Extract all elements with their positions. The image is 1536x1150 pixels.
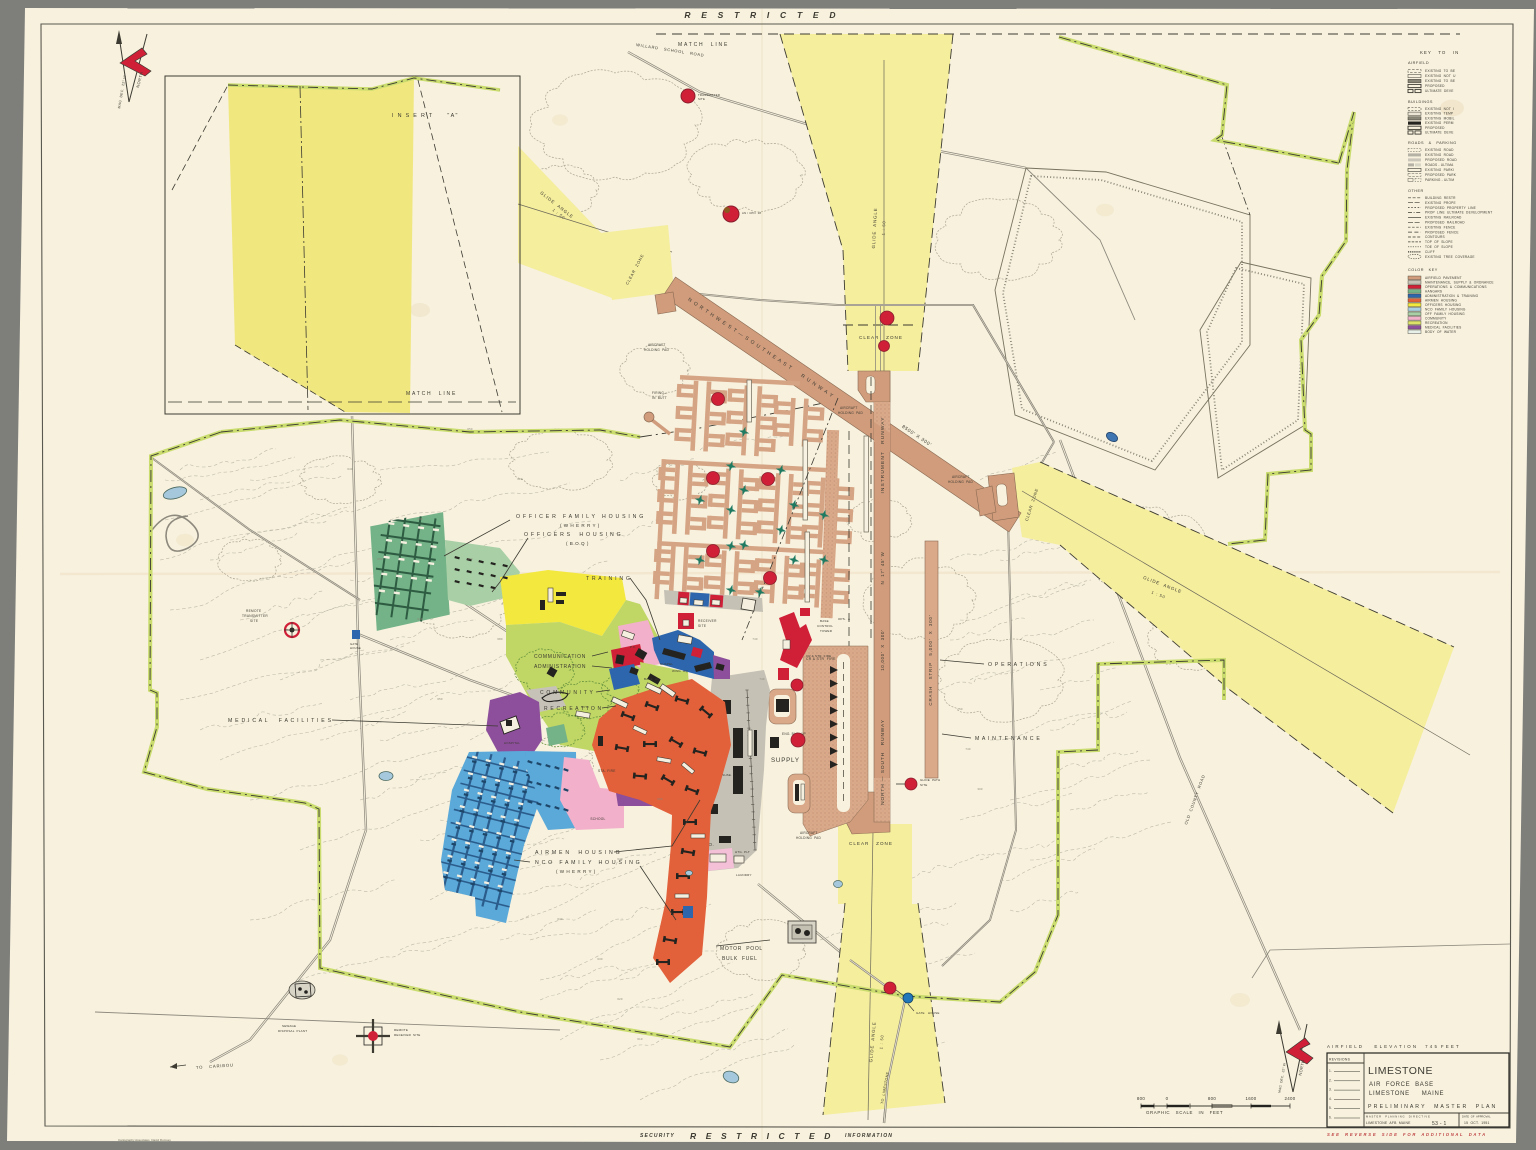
svg-text:740: 740 [752,637,758,641]
svg-text:630: 630 [597,957,603,961]
svg-text:EXISTING TEMP: EXISTING TEMP [1425,112,1453,116]
svg-text:N 17° 45' W: N 17° 45' W [880,551,885,584]
svg-text:MEDICAL FACILITIES: MEDICAL FACILITIES [1425,326,1461,330]
svg-text:EXISTING MOBIL: EXISTING MOBIL [1425,116,1455,120]
svg-text:2400: 2400 [1285,1096,1296,1101]
svg-text:BUILDINGS: BUILDINGS [1408,100,1433,104]
svg-text:GATE HOUSE: GATE HOUSE [916,1011,940,1015]
svg-text:COMMUNICATION: COMMUNICATION [534,654,586,660]
svg-text:GLIDE PATH: GLIDE PATH [920,778,940,782]
svg-text:O P E R A T I O N S: O P E R A T I O N S [988,662,1047,668]
svg-text:INFORMATION: INFORMATION [845,1133,893,1139]
svg-text:BASE HQ: BASE HQ [644,677,660,681]
svg-text:DISPOSAL PLANT: DISPOSAL PLANT [278,1029,307,1033]
svg-text:640: 640 [417,617,423,621]
svg-text:EXISTING NOT I: EXISTING NOT I [1425,107,1454,111]
svg-text:RECREATION: RECREATION [1425,321,1448,325]
svg-text:ROADS - ULTIMA: ROADS - ULTIMA [1425,163,1454,167]
svg-text:P.X.: P.X. [630,645,636,649]
svg-text:P R E L I M I N A R Y M A: P R E L I M I N A R Y M A S T E R P L A … [1368,1104,1496,1110]
svg-text:SITE: SITE [920,783,927,787]
svg-text:CRASH STRIP 5,000' X 300: CRASH STRIP 5,000' X 300' [928,614,933,705]
svg-text:HOSPITAL: HOSPITAL [504,741,520,745]
svg-text:EXISTING ROAD: EXISTING ROAD [1425,148,1454,152]
svg-text:COLOR KEY: COLOR KEY [1408,268,1438,272]
svg-text:PROPOSED ROAD: PROPOSED ROAD [1425,158,1457,162]
svg-text:BUILDING RESTR: BUILDING RESTR [1425,196,1456,200]
svg-text:PROPOSED FENCE: PROPOSED FENCE [1425,230,1459,234]
svg-text:EXISTING TO BE: EXISTING TO BE [1425,79,1455,83]
svg-text:I N S E R T "A": I N S E R T "A" [392,113,459,119]
svg-text:BASE: BASE [820,619,829,623]
svg-text:0: 0 [1166,1096,1169,1101]
svg-text:610: 610 [637,1037,643,1041]
svg-text:M A I N T E N A N C E: M A I N T E N A N C E [975,736,1041,742]
svg-text:GRAPHIC SCALE IN FEET: GRAPHIC SCALE IN FEET [1146,1110,1223,1115]
svg-text:650: 650 [437,697,443,701]
svg-text:BODY OF WATER: BODY OF WATER [1425,330,1457,334]
svg-text:MATCH LINE: MATCH LINE [406,391,457,397]
svg-text:620: 620 [517,477,523,481]
svg-text:( B.O.Q ): ( B.O.Q ) [566,541,589,546]
svg-text:EXISTING TO BE: EXISTING TO BE [1425,69,1455,73]
svg-text:15 OCT. 1951: 15 OCT. 1951 [1464,1121,1490,1125]
svg-text:EXISTING PERM: EXISTING PERM [1425,121,1454,125]
svg-text:53 - 1: 53 - 1 [1432,1121,1447,1127]
svg-text:PROP LINE ULTIMATE DEVELOPM: PROP LINE ULTIMATE DEVELOPMENT [1425,211,1492,215]
svg-text:660: 660 [657,797,663,801]
svg-text:S E E R E V E R S E S I: S E E R E V E R S E S I D E F O R A D D … [1327,1132,1485,1137]
svg-text:RECEIVER: RECEIVER [698,619,717,623]
svg-text:MATCH LINE: MATCH LINE [678,42,729,48]
svg-text:STA. FIRE: STA. FIRE [598,769,616,773]
svg-text:KEY TO IN: KEY TO IN [1420,50,1459,55]
svg-text:10,000' X 300': 10,000' X 300' [880,629,885,670]
svg-text:CONTOURS: CONTOURS [1425,235,1445,239]
svg-text:6.: 6. [1329,1116,1332,1120]
svg-text:R E S T R I C T E D: R E S T R I C T E D [690,1131,834,1141]
svg-text:TOWER: TOWER [820,629,833,633]
svg-text:CR.& STR. FIRE: CR.& STR. FIRE [806,654,831,658]
svg-text:AIRMEN HOUSING: AIRMEN HOUSING [1425,299,1457,303]
svg-text:INSTRUMENT RUNWAY: INSTRUMENT RUNWAY [880,416,886,493]
svg-text:HTG. PLT: HTG. PLT [735,850,750,854]
svg-text:HANGARS: HANGARS [1425,290,1442,294]
svg-text:AIRCRAFT: AIRCRAFT [840,406,858,410]
svg-text:ROADS & PARKING: ROADS & PARKING [1408,141,1457,145]
svg-text:MAINTENANCE, SUPPLY & ORDNA: MAINTENANCE, SUPPLY & ORDNANCE [1425,281,1494,285]
svg-text:( W H E R R Y ): ( W H E R R Y ) [560,523,600,528]
svg-text:640: 640 [617,857,623,861]
svg-text:620: 620 [617,997,623,1001]
svg-text:REMOTE: REMOTE [394,1028,408,1032]
svg-text:SITE: SITE [250,619,258,623]
svg-text:ADMINISTRATION & TRAINING: ADMINISTRATION & TRAINING [1425,294,1479,298]
svg-text:DATE OF APPROVAL: DATE OF APPROVAL [1462,1115,1491,1119]
svg-text:1 : 50: 1 : 50 [881,220,887,235]
svg-text:740: 740 [759,677,765,681]
svg-text:650: 650 [467,557,473,561]
svg-text:TOP OF SLOPE: TOP OF SLOPE [1425,240,1453,244]
svg-text:HOLDING PAD: HOLDING PAD [838,411,864,415]
svg-text:MOTOR POOL: MOTOR POOL [720,946,763,952]
svg-text:1.: 1. [1329,1069,1332,1073]
svg-text:RECEIVER SITE: RECEIVER SITE [394,1033,420,1037]
svg-text:NCO FAMILY HOUSING: NCO FAMILY HOUSING [1425,308,1466,312]
svg-text:A I R M E N H O U S I N G: A I R M E N H O U S I N G [535,850,620,856]
svg-text:O F F I C E R F A M I L Y: O F F I C E R F A M I L Y H O U S I N G [516,514,644,520]
svg-text:LIMESTONE AFB MAINE: LIMESTONE AFB MAINE [1366,1121,1411,1125]
svg-text:3.: 3. [1329,1088,1332,1092]
svg-text:AN / CPN 18: AN / CPN 18 [742,211,761,215]
svg-text:WING HQ: WING HQ [672,669,688,673]
svg-text:AIR FORCE BASE: AIR FORCE BASE [1369,1082,1434,1088]
svg-text:EXISTING TREE COVERAGE: EXISTING TREE COVERAGE [1425,255,1475,259]
svg-text:PROPOSED PROPERTY LINE: PROPOSED PROPERTY LINE [1425,206,1476,210]
svg-text:640: 640 [347,467,353,471]
svg-text:AIRCRAFT: AIRCRAFT [648,343,666,347]
svg-text:REVISIONS: REVISIONS [1329,1058,1351,1062]
svg-text:CHAPEL: CHAPEL [660,662,673,666]
svg-text:BULK FUEL: BULK FUEL [722,956,758,962]
svg-text:640: 640 [557,917,563,921]
svg-text:REMOTE: REMOTE [246,609,261,613]
svg-text:4.: 4. [1329,1097,1332,1101]
svg-text:SEWAGE: SEWAGE [282,1024,296,1028]
svg-text:PROPOSED: PROPOSED [1425,84,1445,88]
svg-text:Cartography Associates David: Cartography Associates David Rumsey [118,1138,171,1142]
svg-text:SITE: SITE [698,624,706,628]
svg-text:AIRCRAFT: AIRCRAFT [800,831,818,835]
svg-text:680: 680 [497,637,503,641]
svg-text:NORTH — SOUTH RUNWAY: NORTH — SOUTH RUNWAY [880,719,886,805]
svg-text:M A S T E R P L A N N I N: M A S T E R P L A N N I N G D I R E C T … [1366,1115,1430,1119]
svg-text:ULTIMATE DEVE: ULTIMATE DEVE [1425,89,1454,93]
svg-text:LAUNDRY: LAUNDRY [736,873,752,877]
svg-text:CLEAR ZONE: CLEAR ZONE [859,335,903,340]
svg-text:ADMINISTRATION: ADMINISTRATION [534,664,586,670]
svg-text:PROPOSED PARK: PROPOSED PARK [1425,173,1457,177]
svg-text:AIRCRAFT: AIRCRAFT [952,475,970,479]
svg-text:HOLDING PAD: HOLDING PAD [948,480,974,484]
svg-text:CLIFF: CLIFF [1425,250,1435,254]
svg-text:FIRING—: FIRING— [652,391,668,395]
svg-text:OPERATIONS & COMMUNICATIONS: OPERATIONS & COMMUNICATIONS [1425,285,1487,289]
svg-text:HOLDING PAD: HOLDING PAD [644,348,670,352]
svg-text:650: 650 [467,427,473,431]
svg-text:800: 800 [1208,1096,1216,1101]
svg-text:SUPPLY: SUPPLY [771,757,800,764]
svg-text:PARKING - ULTIM: PARKING - ULTIM [1425,178,1454,182]
svg-text:M E D I C A L F A C I L I: M E D I C A L F A C I L I T I E S [228,718,332,724]
svg-text:ULTIMATE DEVE: ULTIMATE DEVE [1425,131,1454,135]
svg-text:PROPOSED RAILROAD: PROPOSED RAILROAD [1425,221,1465,225]
svg-text:750: 750 [957,707,963,711]
svg-text:TOE OF SLOPE: TOE OF SLOPE [1425,245,1453,249]
svg-text:AIRFIELD: AIRFIELD [1408,61,1429,65]
svg-text:650: 650 [377,557,383,561]
svg-text:PROPOSED: PROPOSED [1425,126,1445,130]
svg-text:SECURITY: SECURITY [640,1133,675,1139]
svg-text:OFFICERS HOUSING: OFFICERS HOUSING [1425,303,1461,307]
svg-text:2.: 2. [1329,1078,1332,1082]
svg-text:T R A I N I N G: T R A I N I N G [586,576,631,582]
svg-text:C O M M U N I T Y: C O M M U N I T Y [540,690,594,696]
svg-text:LIMESTONE MAINE: LIMESTONE MAINE [1369,1091,1444,1097]
svg-text:630: 630 [417,517,423,521]
svg-text:COMMUNITY: COMMUNITY [1425,317,1447,321]
svg-text:SITE: SITE [698,97,705,101]
svg-text:HOUSE: HOUSE [350,646,361,650]
svg-text:EXISTING NOT U: EXISTING NOT U [1425,74,1456,78]
svg-text:N C O F A M I L Y H O U S: N C O F A M I L Y H O U S I N G [535,860,640,866]
svg-text:HOLDING PAD: HOLDING PAD [796,836,822,840]
svg-text:CONTROL: CONTROL [817,624,833,628]
svg-text:( W H E R R Y ): ( W H E R R Y ) [556,869,596,874]
svg-text:750: 750 [757,587,763,591]
svg-text:740: 740 [965,747,971,751]
svg-text:300: 300 [977,787,983,791]
svg-text:LIMESTONE: LIMESTONE [1368,1065,1433,1077]
svg-text:EXISTING PARKI: EXISTING PARKI [1425,168,1454,172]
svg-text:5.: 5. [1329,1106,1332,1110]
svg-text:OTHER: OTHER [1408,189,1424,193]
svg-text:OFF FAMILY HOUSING: OFF FAMILY HOUSING [1425,312,1465,316]
svg-text:R E S T R I C T E D: R E S T R I C T E D [684,10,839,20]
svg-text:OPS. &: OPS. & [838,617,850,621]
svg-text:EXISTING RAILROAD: EXISTING RAILROAD [1425,216,1462,220]
svg-text:R E C R E A T I O N: R E C R E A T I O N [544,706,602,712]
svg-text:CLEAR ZONE: CLEAR ZONE [849,841,893,846]
svg-text:IN BUTT: IN BUTT [652,396,667,400]
svg-text:800: 800 [1137,1096,1145,1101]
svg-text:O F F I C E R S H O U S I N: O F F I C E R S H O U S I N G [524,532,621,538]
svg-text:AIRFIELD PAVEMENT: AIRFIELD PAVEMENT [1425,276,1462,280]
svg-text:EXISTING PROPE: EXISTING PROPE [1425,201,1456,205]
svg-text:EXISTING ROAD: EXISTING ROAD [1425,153,1454,157]
svg-text:1600: 1600 [1246,1096,1257,1101]
svg-text:TRANSMITTER: TRANSMITTER [242,614,268,618]
svg-text:SCHOOL: SCHOOL [590,817,605,821]
svg-text:A I R F I E L D E L E V: A I R F I E L D E L E V A T I O N 7 4 5 … [1327,1044,1459,1049]
svg-text:EXISTING FENCE: EXISTING FENCE [1425,225,1455,229]
